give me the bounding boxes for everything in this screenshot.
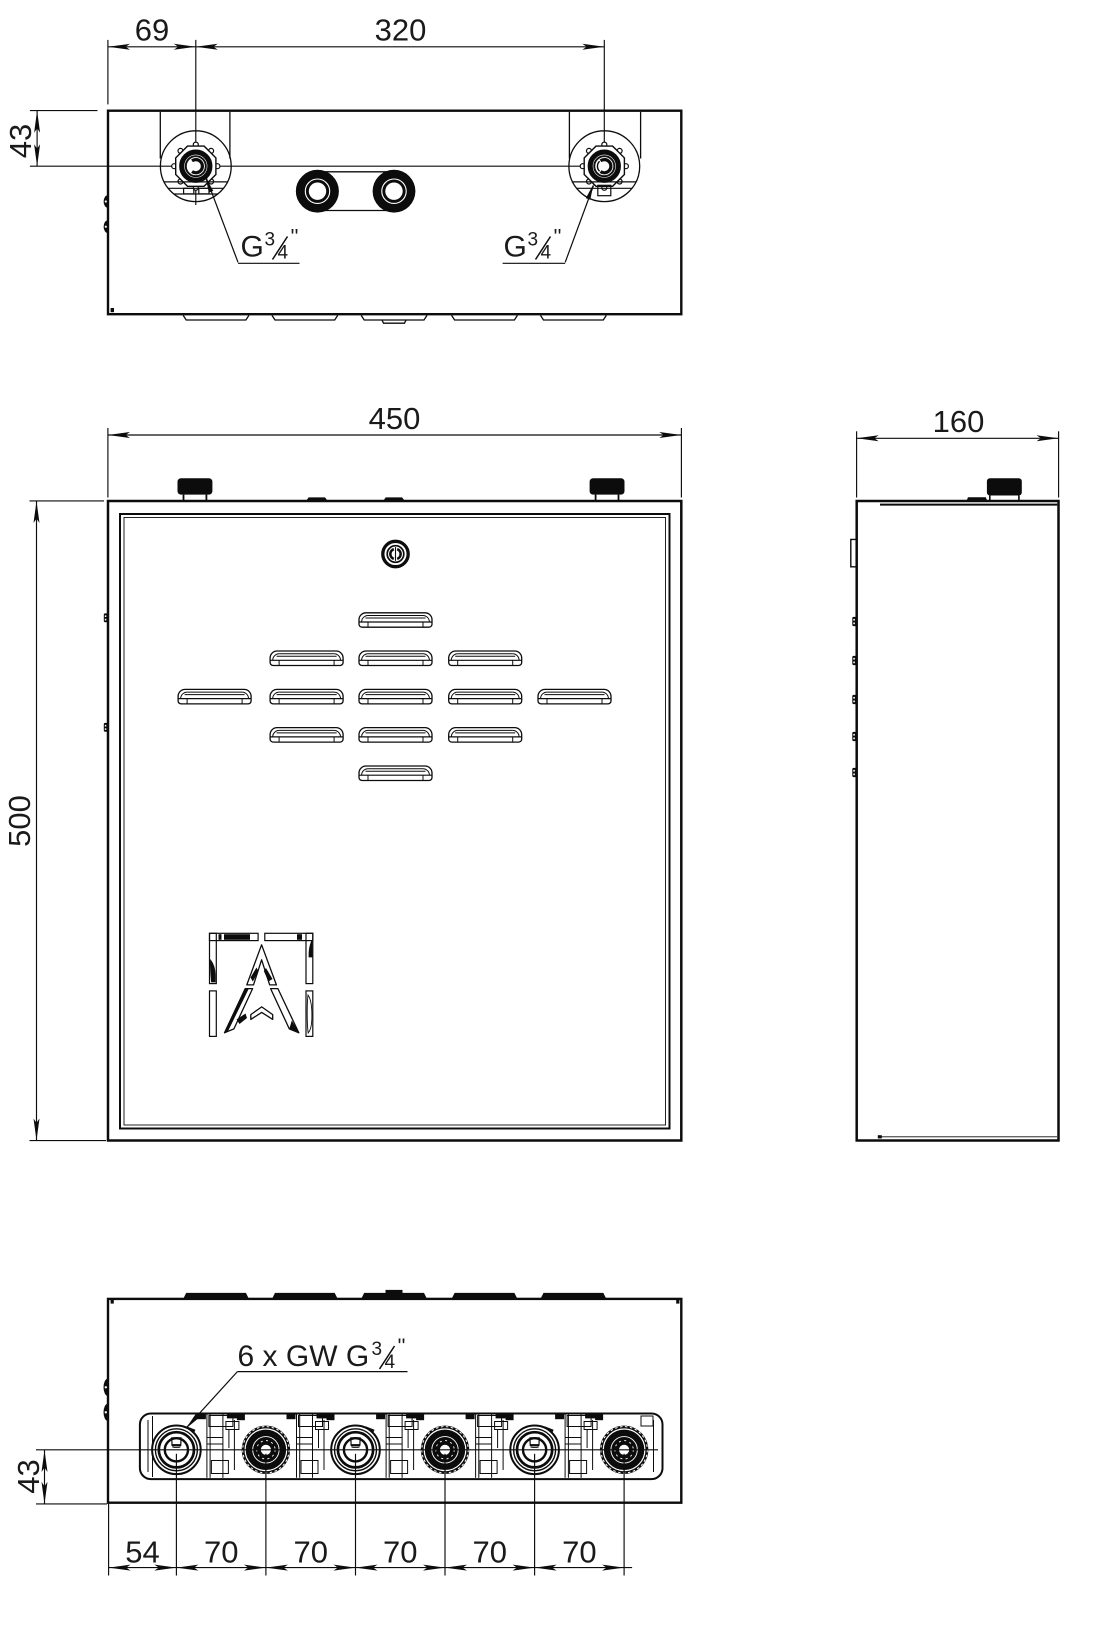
svg-text:3: 3: [528, 230, 539, 251]
svg-text:69: 69: [135, 13, 169, 48]
svg-text:320: 320: [375, 13, 427, 48]
svg-text:43: 43: [11, 1459, 46, 1493]
svg-text:70: 70: [473, 1534, 507, 1569]
svg-text:6 x GW G: 6 x GW G: [238, 1340, 370, 1373]
svg-text:'': '': [291, 226, 299, 249]
svg-text:3: 3: [265, 230, 276, 251]
svg-text:160: 160: [933, 404, 985, 439]
svg-text:G: G: [241, 231, 264, 264]
svg-text:70: 70: [562, 1534, 596, 1569]
svg-text:43: 43: [3, 124, 38, 158]
svg-text:500: 500: [2, 795, 37, 847]
svg-text:4: 4: [278, 243, 289, 264]
svg-text:4: 4: [385, 1352, 396, 1373]
svg-text:70: 70: [293, 1534, 327, 1569]
svg-text:'': '': [398, 1335, 406, 1358]
svg-text:450: 450: [369, 401, 421, 436]
svg-text:70: 70: [383, 1534, 417, 1569]
svg-text:54: 54: [125, 1534, 159, 1569]
svg-text:70: 70: [204, 1534, 238, 1569]
svg-text:G: G: [504, 231, 527, 264]
svg-text:4: 4: [541, 243, 552, 264]
svg-text:3: 3: [372, 1339, 383, 1360]
svg-text:'': '': [554, 226, 562, 249]
